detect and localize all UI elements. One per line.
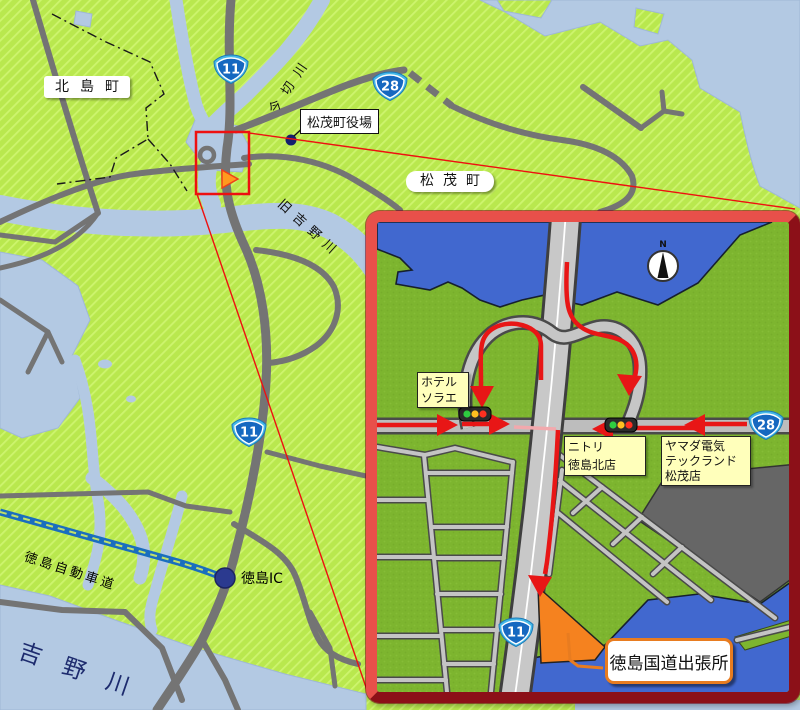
- traffic-light-east: [605, 418, 637, 432]
- label-line: ソラエ: [421, 390, 465, 406]
- label-yamada-denki: ヤマダ電気 テックランド 松茂店: [661, 436, 751, 486]
- label-line: ニトリ: [568, 438, 642, 456]
- label-matsushige-town-hall: 松茂町役場: [300, 109, 379, 134]
- label-line: テックランド: [665, 454, 747, 469]
- label-hotel-sorae: ホテル ソラエ: [417, 372, 469, 408]
- tokushima-ic-dot: [215, 568, 235, 588]
- label-line: ホテル: [421, 374, 465, 390]
- inset-detail-map: N 28 11 ホテル ソラエ ニトリ 徳島北店 ヤマダ電気 テッ: [366, 211, 800, 703]
- label-line: 徳島北店: [568, 456, 642, 474]
- road-access-map: 11 28 11 北島町 今切川 松茂町役場 松茂町 旧吉野川 徳島自動車道 徳…: [0, 0, 800, 710]
- shield-number: 11: [240, 426, 258, 441]
- shield-number: 11: [222, 63, 240, 78]
- label-line: 松茂店: [665, 469, 747, 484]
- label-destination-office: 徳島国道出張所: [605, 638, 733, 684]
- label-line: ヤマダ電気: [665, 439, 747, 454]
- traffic-light-west: [459, 407, 491, 421]
- label-tokushima-ic: 徳島IC: [241, 568, 283, 588]
- label-kitajima-town: 北島町: [44, 76, 130, 98]
- label-nitori: ニトリ 徳島北店: [564, 436, 646, 476]
- compass-n-label: N: [659, 240, 667, 250]
- shield-number: 11: [507, 626, 525, 641]
- shield-number: 28: [381, 80, 399, 95]
- shield-number: 28: [757, 419, 775, 434]
- label-matsushige-town: 松茂町: [406, 171, 494, 192]
